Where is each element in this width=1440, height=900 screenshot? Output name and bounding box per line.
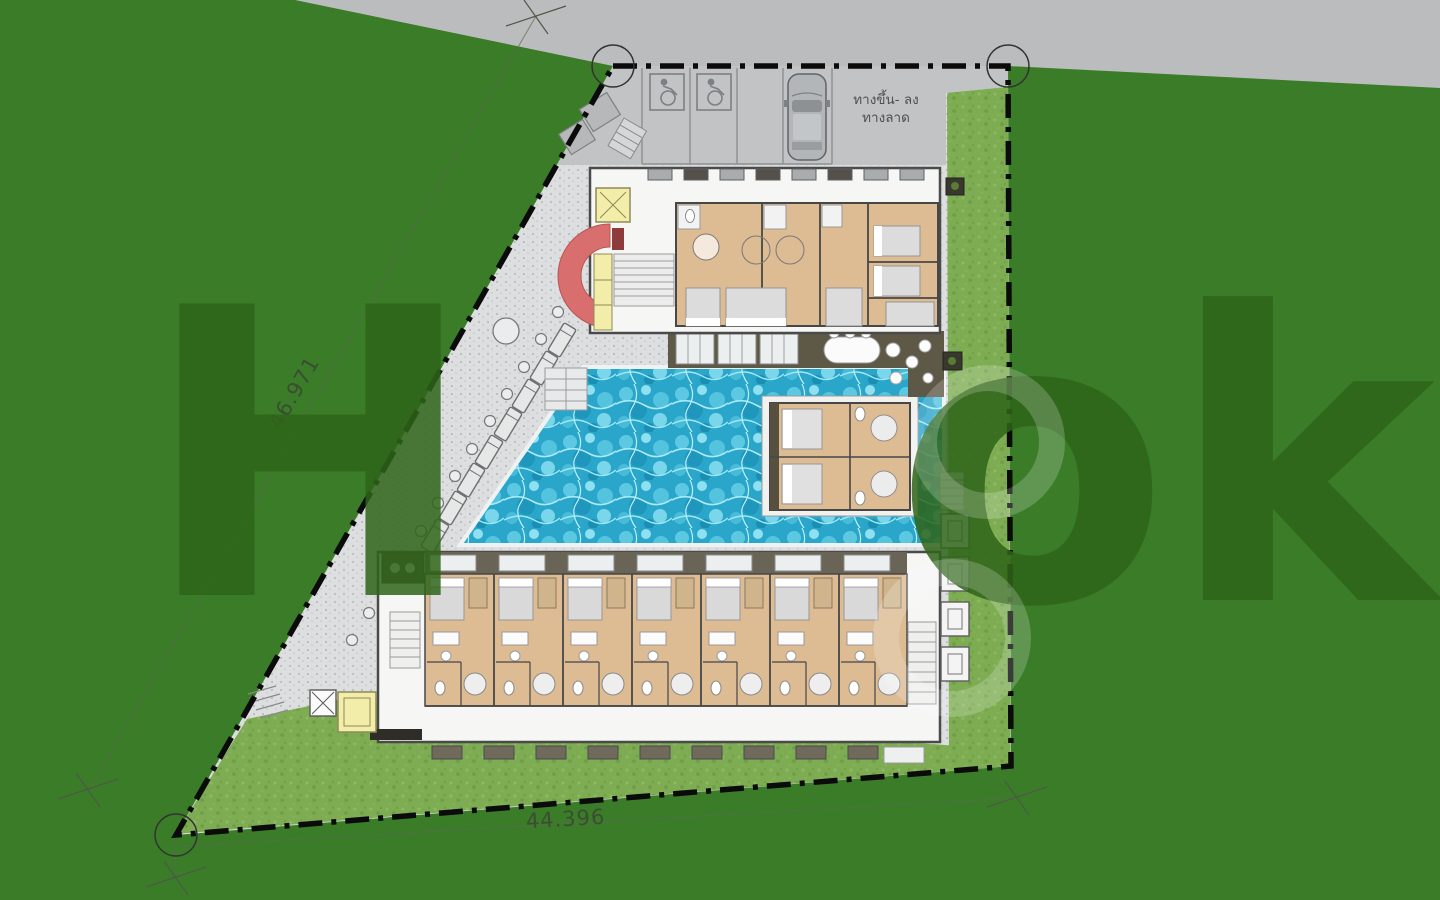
toilet xyxy=(686,210,695,223)
round-table xyxy=(693,234,719,260)
ramp-label-line1: ทางขึ้น- ลง xyxy=(853,89,919,108)
toilet xyxy=(855,407,865,421)
shower xyxy=(871,415,897,441)
bed xyxy=(826,288,862,326)
car-icon xyxy=(784,74,830,160)
dining-table xyxy=(824,337,880,363)
site-plan-drawing: ทางขึ้น- ลง ทางลาด xyxy=(0,0,1440,900)
watermark-letter-left: H xyxy=(143,225,478,690)
toilet xyxy=(855,491,865,505)
ramp-label-line2: ทางลาด xyxy=(862,110,910,126)
bathroom xyxy=(822,205,842,227)
umbrella-icon xyxy=(493,318,519,344)
top-room-block xyxy=(558,168,940,333)
shower xyxy=(871,471,897,497)
service-shaft xyxy=(594,254,612,330)
watermark-letters-right: ok xyxy=(895,230,1440,695)
bathroom xyxy=(764,205,786,229)
pool-windows xyxy=(430,555,890,571)
bottom-dimension-label: 44.396 xyxy=(525,805,606,834)
entry-bench xyxy=(370,729,422,740)
pool-steps xyxy=(545,368,587,410)
site-plan-canvas: ทางขึ้น- ลง ทางลาด xyxy=(0,0,1440,900)
lobby-stairs xyxy=(614,254,674,306)
